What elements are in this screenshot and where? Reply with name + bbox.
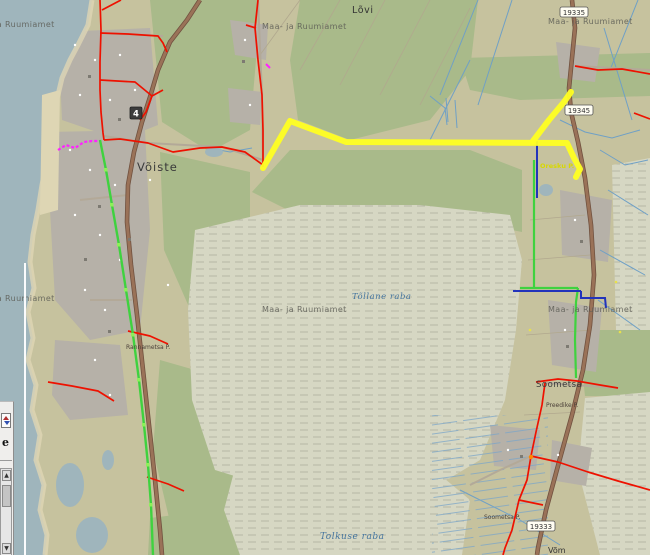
watermark: Maa- ja Ruumiamet <box>262 22 347 31</box>
label-bottom-partial: Võm <box>548 546 566 555</box>
scroll-up-button[interactable]: ▲ <box>2 470 11 481</box>
road-shield-mid: 19345 <box>565 105 593 115</box>
left-side-panel: e ▲ ▼ <box>0 401 14 555</box>
label-soometsa: Soometsa <box>536 380 582 390</box>
scroll-down-button[interactable]: ▼ <box>2 543 11 554</box>
watermark: Maa- ja Ruumiamet <box>548 17 633 26</box>
dune-strip <box>40 90 60 215</box>
svg-text:19335: 19335 <box>563 9 585 17</box>
ditch-field <box>432 415 548 555</box>
orange-node[interactable] <box>529 455 533 459</box>
label-bog-south: Tolkuse raba <box>320 532 384 542</box>
label-rannametsa-p: Rannametsa P. <box>126 344 170 351</box>
label-lovi: Lõvi <box>352 5 374 16</box>
blue-arrow-icon <box>4 421 10 425</box>
road-shield-north: 19335 <box>560 7 588 17</box>
svg-text:19345: 19345 <box>568 107 590 115</box>
scroll-thumb[interactable] <box>2 485 11 507</box>
label-yellow-line: Oresku P. <box>540 162 574 170</box>
road-shield-south: 19333 <box>527 521 555 531</box>
map-canvas[interactable]: 19335 19345 19333 4 Lõvi Võiste Soometsa… <box>0 0 650 555</box>
svg-text:4: 4 <box>133 110 139 120</box>
panel-tool-button[interactable] <box>1 413 11 428</box>
label-soometsa-p: Soometsa P. <box>484 514 520 521</box>
road-shield-main-4: 4 <box>130 107 142 120</box>
white-divider-line <box>24 263 26 555</box>
watermark: Maa- ja Ruumiamet <box>262 305 347 314</box>
watermark: Maa- ja Ruumiamet <box>548 305 633 314</box>
watermark: Maa- ja Ruumiamet <box>0 20 55 29</box>
panel-separator <box>0 460 12 461</box>
label-preedike: Preedike P. <box>546 402 578 409</box>
watermark: Maa- ja Ruumiamet <box>0 294 55 303</box>
panel-clipped-text: e <box>2 436 9 449</box>
panel-scrollbar[interactable]: ▲ ▼ <box>0 468 12 555</box>
red-arrow-icon <box>3 416 9 420</box>
label-voiste: Võiste <box>137 160 178 174</box>
svg-text:19333: 19333 <box>530 523 552 531</box>
label-bog-north: Tõllane raba <box>352 291 411 302</box>
map-viewport[interactable]: 19335 19345 19333 4 Lõvi Võiste Soometsa… <box>0 0 650 555</box>
